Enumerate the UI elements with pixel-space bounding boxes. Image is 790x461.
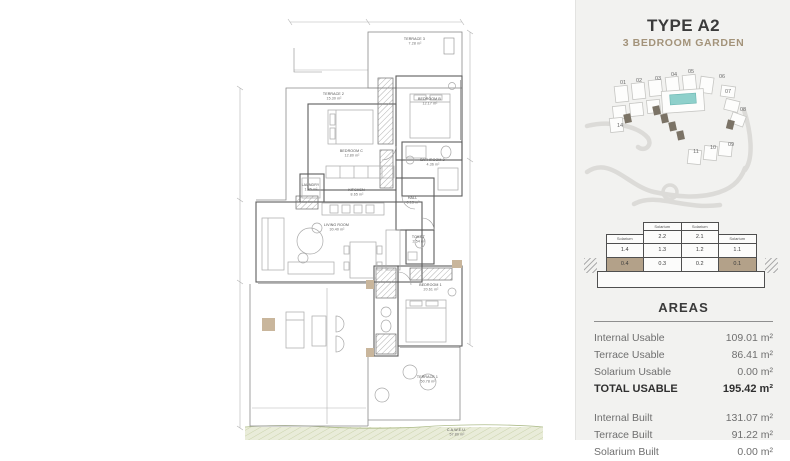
area-label: Internal Usable [594, 330, 665, 347]
svg-text:BEDROOM 1 20.61 m²: BEDROOM 1 20.61 m² [419, 283, 443, 291]
area-label: Terrace Usable [594, 347, 665, 364]
unit-cell-0-4-highlighted: 0.4 [606, 257, 645, 272]
unit-type-title: TYPE A2 [576, 16, 790, 36]
block-number: 04 [671, 72, 677, 78]
unit-cell-1-2: 1.2 [681, 243, 720, 258]
area-row: Terrace Built 91.22 m² [594, 427, 773, 444]
area-value: 195.42 m² [723, 381, 773, 398]
unit-cell-0-1-highlighted: 0.1 [718, 257, 757, 272]
unit-cell-0-2: 0.2 [681, 257, 720, 272]
room-label-terrace-3: TERRACE 3 [404, 37, 425, 41]
room-label-bedroom-c: BEDROOM C [340, 149, 363, 153]
floor-plan-area: TERRACE 3 7.28 m² BEDROOM B 12.17 m² TER… [0, 0, 575, 440]
block-number: 10 [710, 145, 716, 151]
block-number: 02 [636, 78, 642, 84]
area-value: 86.41 m² [732, 347, 773, 364]
area-label: Terrace Built [594, 427, 652, 444]
room-label-terrace-2: TERRACE 2 [323, 92, 344, 96]
unit-cell-2-2: 2.2 [643, 230, 682, 244]
area-value: 0.00 m² [737, 364, 773, 381]
svg-text:C.A.W.E.U. 57.80 m²: C.A.W.E.U. 57.80 m² [447, 428, 467, 436]
svg-text:TERRACE 2 15.30 m²: TERRACE 2 15.30 m² [323, 92, 345, 100]
room-label-toilet: TOILET [412, 235, 426, 239]
room-label-bedroom-b: BEDROOM B [418, 97, 441, 101]
room-label-kitchen: KITCHEN [348, 188, 365, 192]
area-value: 91.22 m² [732, 427, 773, 444]
area-row-total: TOTAL USABLE 195.42 m² [594, 381, 773, 398]
area-label: Internal Built [594, 410, 652, 427]
svg-text:TOILET 2.54 m²: TOILET 2.54 m² [412, 235, 426, 243]
area-row: Solarium Built 0.00 m² [594, 444, 773, 461]
site-pool [670, 93, 697, 105]
site-plan: 01 02 03 04 05 06 07 08 09 10 11 14 [584, 58, 784, 210]
unit-cell-1-1: 1.1 [718, 243, 757, 258]
info-panel: TYPE A2 3 BEDROOM GARDEN [575, 0, 790, 440]
room-label-laundry: LAUNDRY [302, 183, 320, 187]
area-label: Solarium Usable [594, 364, 671, 381]
windows [258, 80, 461, 348]
svg-text:BATHROOM 2 4.36 m²: BATHROOM 2 4.36 m² [420, 158, 446, 166]
area-value: 0.00 m² [737, 444, 773, 461]
room-label-bedroom-1: BEDROOM 1 [419, 283, 441, 287]
block-number: 14 [617, 123, 623, 129]
terrace-boundaries [250, 32, 462, 426]
ground-hatch-right [765, 258, 778, 273]
svg-text:HALL 6.13 m²: HALL 6.13 m² [407, 196, 421, 204]
floor-plan-drawing: TERRACE 3 7.28 m² BEDROOM B 12.17 m² TER… [0, 0, 575, 440]
svg-text:KITCHEN 8.65 m²: KITCHEN 8.65 m² [348, 188, 366, 196]
room-label-terrace-1: TERRACE 1 [417, 375, 438, 379]
area-row: Solarium Usable 0.00 m² [594, 364, 773, 381]
block-number: 03 [655, 76, 661, 82]
building-section-diagram: Solarium Solarium Solarium 2.2 2.1 Solar… [606, 222, 756, 288]
block-number: 07 [725, 89, 731, 95]
area-row: Internal Built 131.07 m² [594, 410, 773, 427]
areas-title: AREAS [594, 300, 773, 322]
dimension-lines [237, 19, 473, 430]
svg-text:LIVING ROOM 30.40 m²: LIVING ROOM 30.40 m² [324, 223, 350, 231]
block-number: 08 [740, 107, 746, 113]
area-label: TOTAL USABLE [594, 381, 678, 398]
area-value: 109.01 m² [726, 330, 773, 347]
block-number: 01 [620, 80, 626, 86]
building-base [597, 271, 765, 288]
area-row: Internal Usable 109.01 m² [594, 330, 773, 347]
room-label-hall: HALL [408, 196, 417, 200]
room-label-bathroom-2: BATHROOM 2 [420, 158, 445, 162]
unit-cell-1-3: 1.3 [643, 243, 682, 258]
unit-type-subtitle: 3 BEDROOM GARDEN [576, 37, 790, 49]
area-label: Solarium Built [594, 444, 659, 461]
room-label-caweu: C.A.W.E.U. [447, 428, 466, 432]
block-number: 11 [693, 149, 699, 155]
unit-cell-0-3: 0.3 [643, 257, 682, 272]
furniture [262, 83, 458, 403]
unit-cell-2-1: 2.1 [681, 230, 720, 244]
svg-text:BEDROOM B 12.17 m²: BEDROOM B 12.17 m² [418, 97, 442, 105]
unit-cell-1-4: 1.4 [606, 243, 645, 258]
block-number: 06 [719, 74, 725, 80]
areas-section: AREAS Internal Usable 109.01 m² Terrace … [594, 300, 773, 461]
garden-strip [245, 425, 543, 440]
block-number: 05 [688, 69, 694, 75]
ground-hatch-left [584, 258, 597, 273]
area-row: Terrace Usable 86.41 m² [594, 347, 773, 364]
area-value: 131.07 m² [726, 410, 773, 427]
room-label-living-room: LIVING ROOM [324, 223, 349, 227]
block-number: 09 [728, 142, 734, 148]
svg-text:BEDROOM C 12.80 m²: BEDROOM C 12.80 m² [340, 149, 364, 157]
apartment-walls [256, 76, 462, 356]
svg-text:TERRACE 3 7.28 m²: TERRACE 3 7.28 m² [404, 37, 426, 45]
